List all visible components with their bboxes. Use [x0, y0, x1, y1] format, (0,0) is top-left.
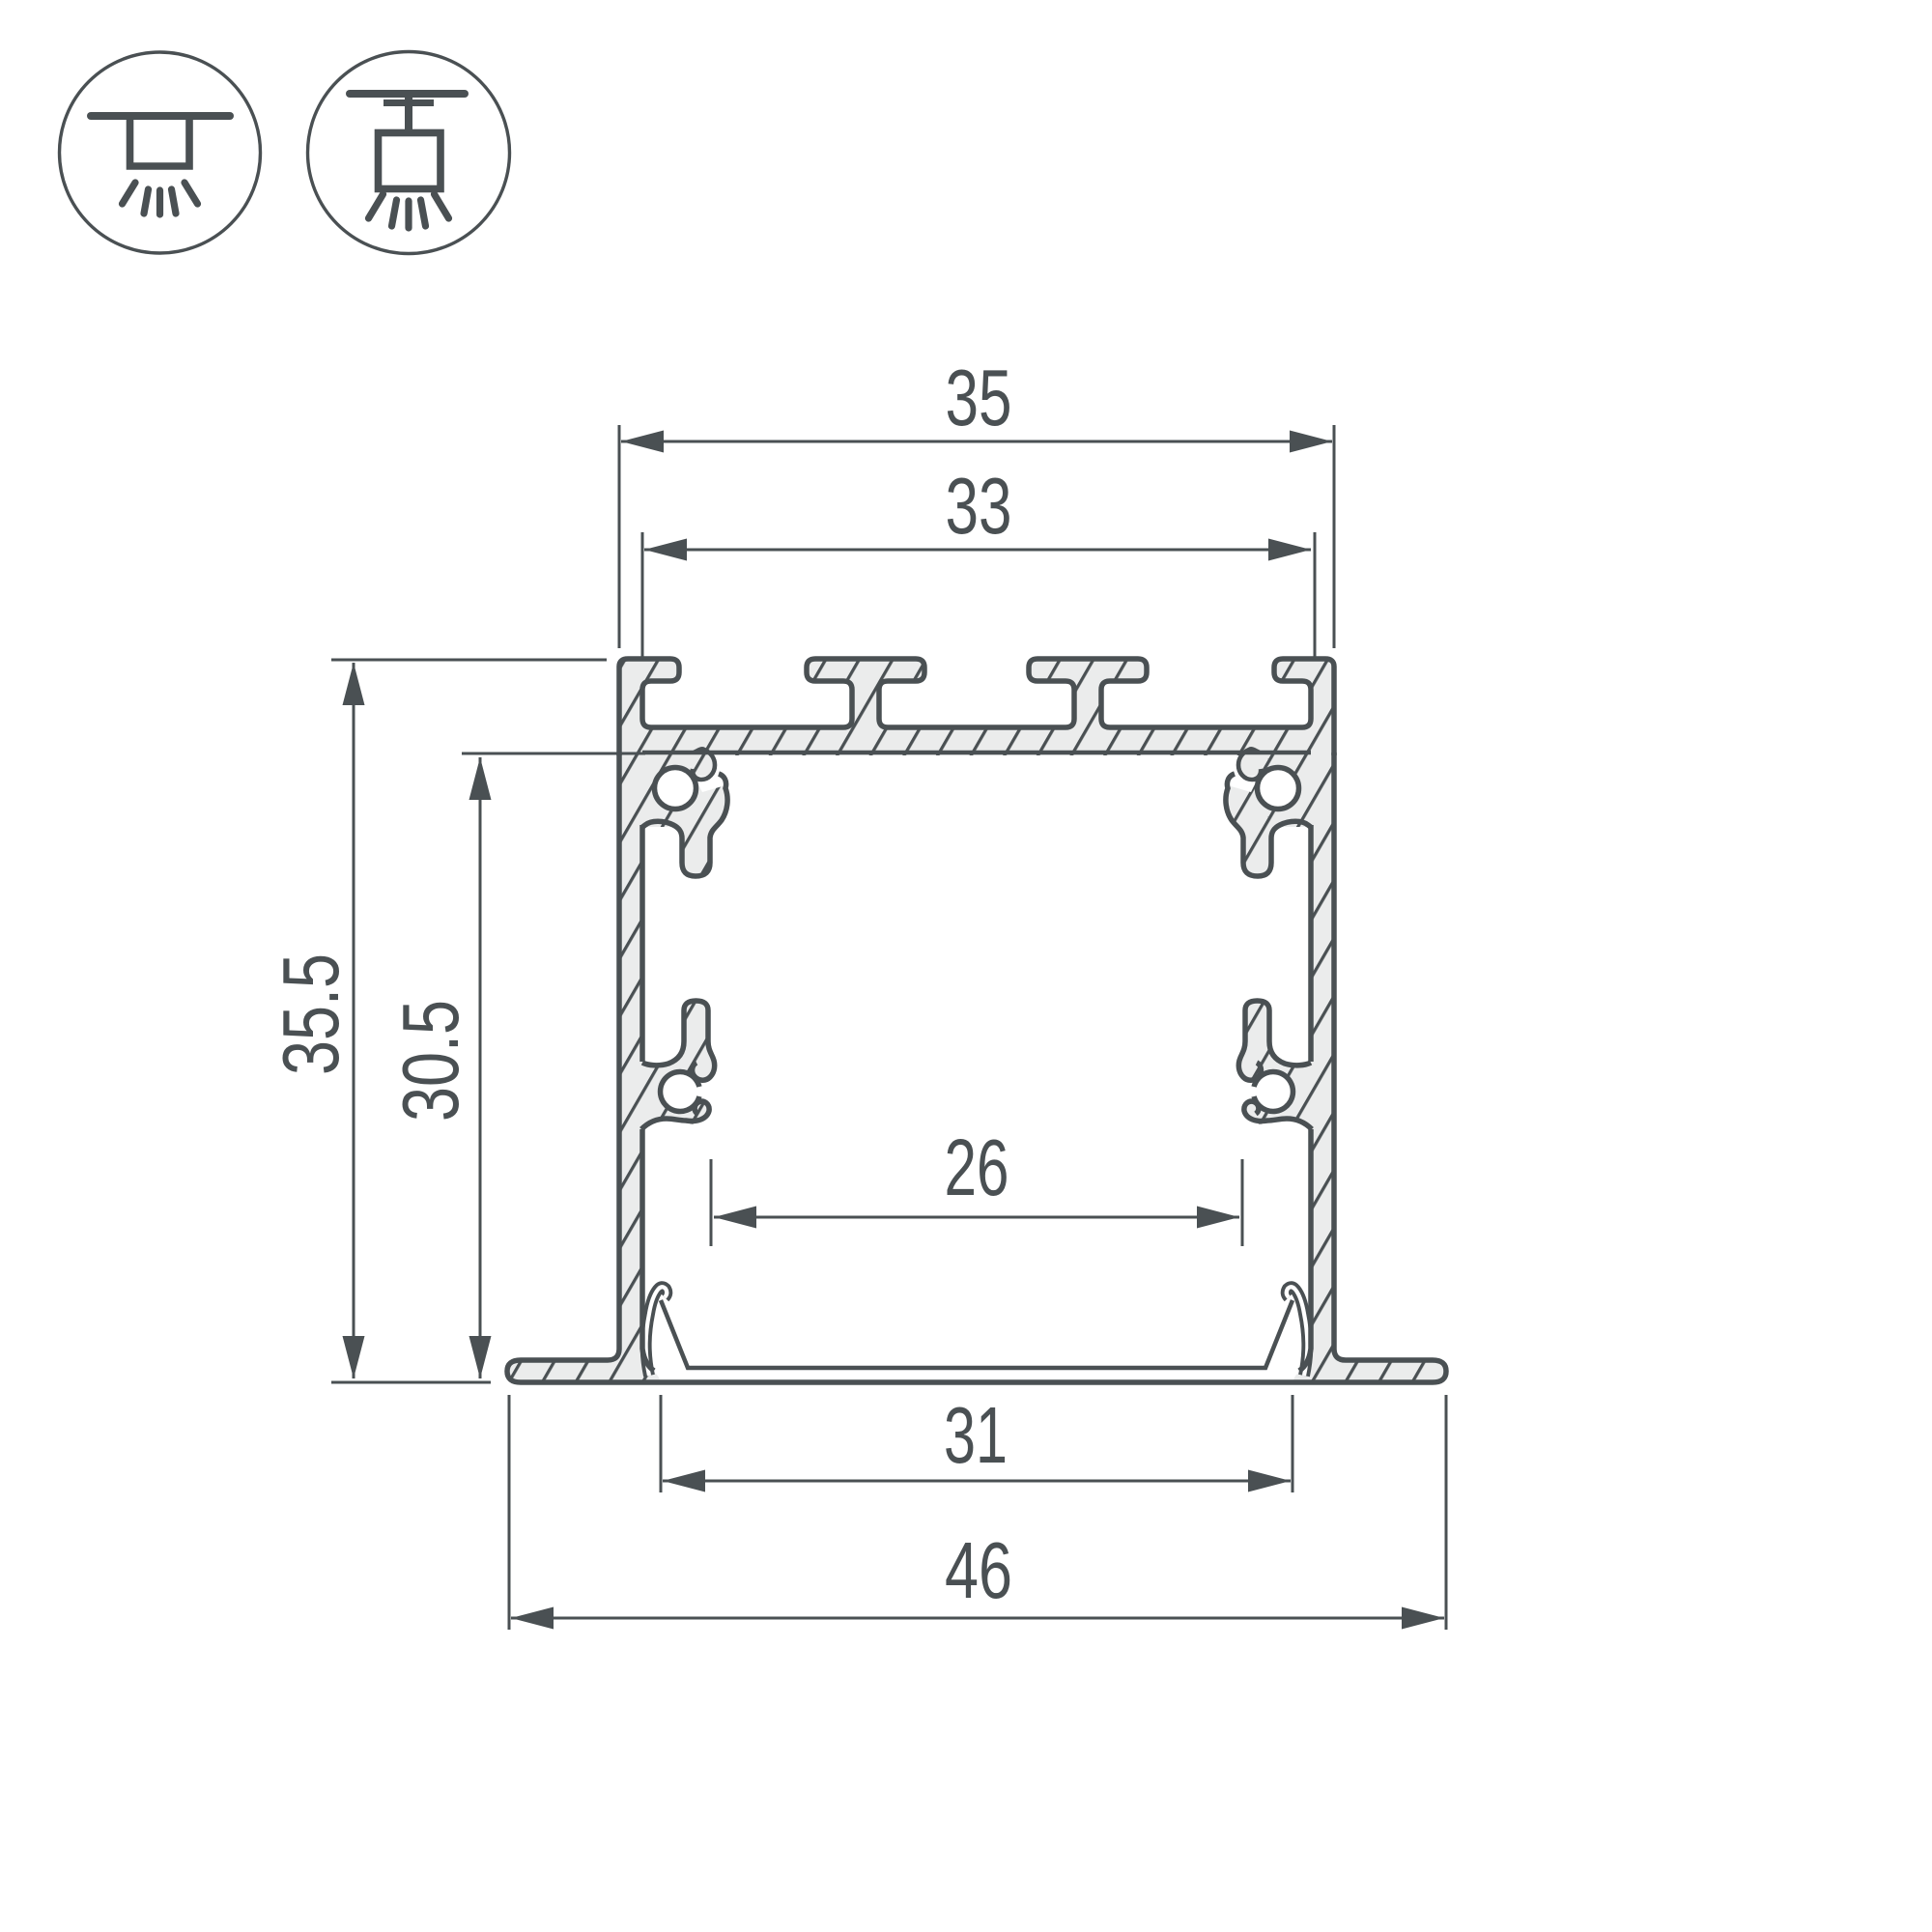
- svg-text:31: 31: [944, 1390, 1008, 1480]
- svg-text:35: 35: [946, 353, 1012, 442]
- svg-text:35.5: 35.5: [266, 953, 355, 1075]
- svg-text:26: 26: [945, 1122, 1009, 1212]
- svg-text:33: 33: [946, 461, 1012, 551]
- svg-text:46: 46: [945, 1525, 1012, 1615]
- svg-text:30.5: 30.5: [385, 1000, 475, 1122]
